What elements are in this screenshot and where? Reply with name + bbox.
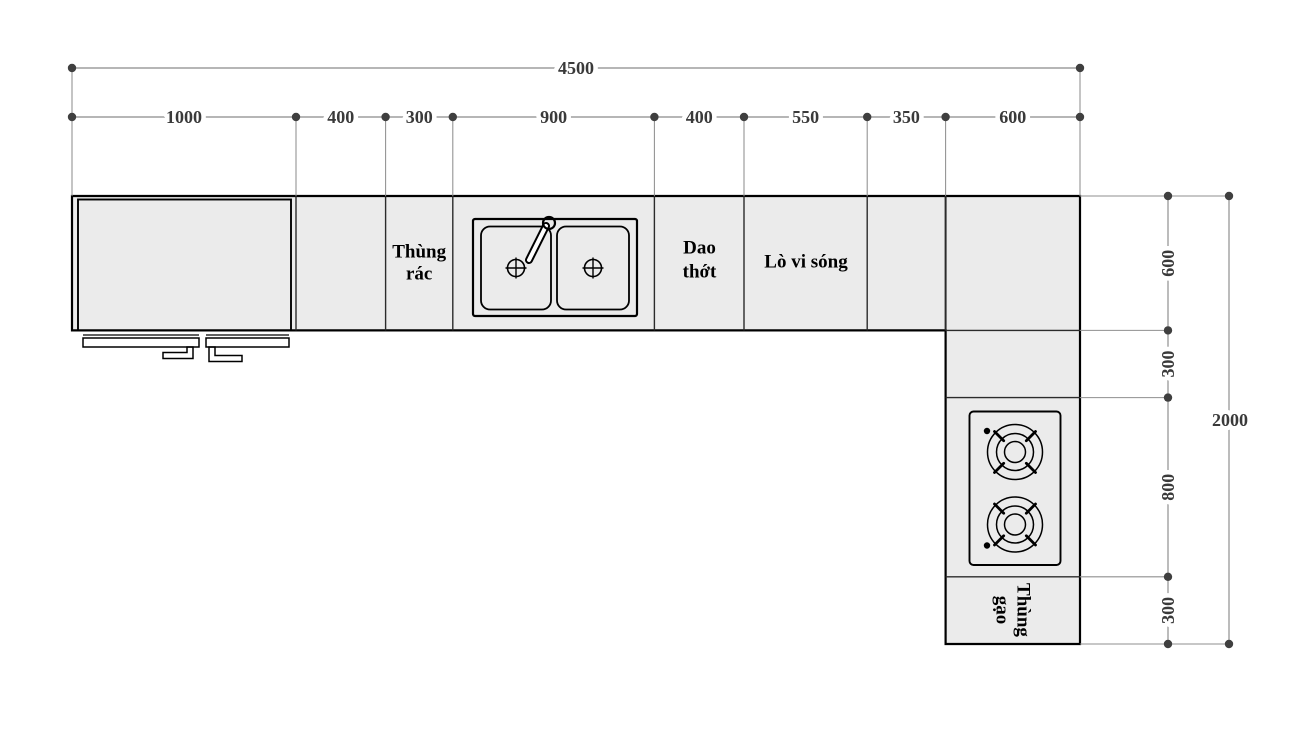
counter-outline	[72, 196, 1080, 644]
label-trash-line1: Thùng	[392, 242, 446, 263]
dim-marker	[1076, 64, 1084, 72]
dim-right-segment-4: 300	[1158, 597, 1178, 624]
dim-marker	[1164, 393, 1172, 401]
knob-dot	[984, 428, 990, 434]
dim-marker	[292, 113, 300, 121]
kitchen-plan-drawing: Thùng rác Dao thớt Lò vi sóng Thùng gạo …	[0, 0, 1315, 730]
dim-marker	[1076, 113, 1084, 121]
dimension-top: 4500 1000 400 300 900 400 550 350 600	[68, 58, 1084, 196]
dim-right-segment-3: 800	[1158, 474, 1178, 501]
dim-marker	[941, 113, 949, 121]
dim-top-segment-8: 600	[999, 107, 1026, 127]
dim-right-segment-1: 600	[1158, 250, 1178, 277]
label-microwave: Lò vi sóng	[764, 252, 848, 273]
label-trash-line2: rác	[406, 264, 432, 285]
dim-marker	[1164, 192, 1172, 200]
dim-marker	[1164, 326, 1172, 334]
label-cutting-line2: thớt	[683, 262, 717, 283]
plan-canvas: Thùng rác Dao thớt Lò vi sóng Thùng gạo …	[0, 0, 1315, 730]
dim-marker	[650, 113, 658, 121]
knob-dot	[984, 542, 990, 548]
label-cutting-line1: Dao	[683, 238, 716, 259]
dim-marker	[381, 113, 389, 121]
dim-right-segment-2: 300	[1158, 351, 1178, 378]
dim-marker	[863, 113, 871, 121]
dim-top-segment-3: 300	[406, 107, 433, 127]
dimension-right: 600 300 800 300 2000	[1080, 192, 1248, 648]
dim-top-segment-5: 400	[686, 107, 713, 127]
label-rice-line2: gạo	[991, 596, 1012, 625]
dim-top-segment-7: 350	[893, 107, 920, 127]
fridge-door-left	[83, 338, 199, 347]
dim-top-segment-1: 1000	[166, 107, 202, 127]
dim-top-segment-2: 400	[327, 107, 354, 127]
dim-top-segment-6: 550	[792, 107, 819, 127]
dim-marker	[1225, 640, 1233, 648]
counter	[72, 196, 1080, 644]
dim-marker	[68, 64, 76, 72]
label-rice-line1: Thùng	[1012, 583, 1033, 637]
dim-marker	[1164, 573, 1172, 581]
dim-marker	[449, 113, 457, 121]
dim-marker	[1225, 192, 1233, 200]
dim-marker	[68, 113, 76, 121]
fridge-handle-icon	[209, 347, 242, 362]
fridge-handle-icon	[163, 347, 193, 359]
dim-top-segment-4: 900	[540, 107, 567, 127]
dim-marker	[1164, 640, 1172, 648]
fridge-door-right	[206, 338, 289, 347]
dim-right-total: 2000	[1212, 410, 1248, 430]
dim-top-total: 4500	[558, 58, 594, 78]
dim-marker	[740, 113, 748, 121]
